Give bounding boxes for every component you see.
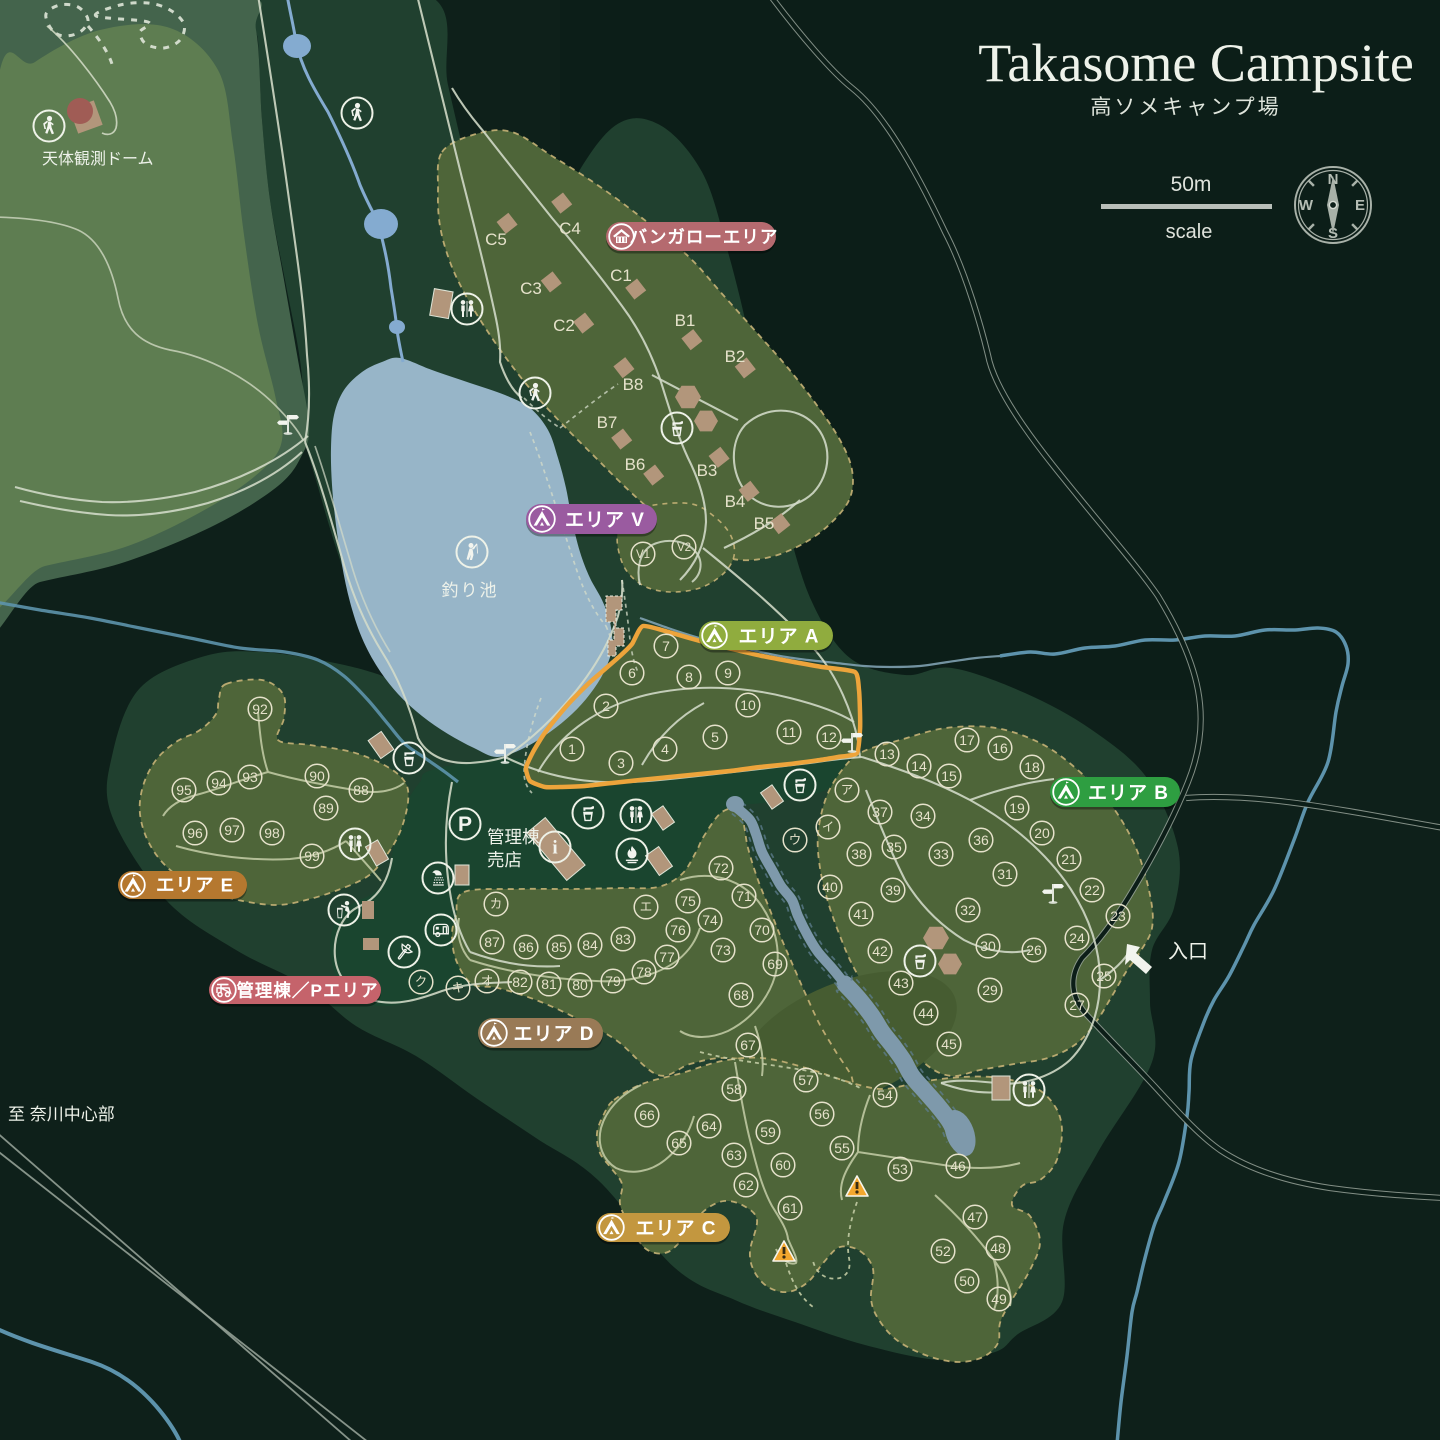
svg-text:39: 39 xyxy=(885,882,901,898)
svg-text:43: 43 xyxy=(893,975,909,991)
svg-text:26: 26 xyxy=(1026,942,1042,958)
svg-text:25: 25 xyxy=(1096,968,1112,984)
svg-text:27: 27 xyxy=(1069,997,1085,1013)
svg-text:C3: C3 xyxy=(520,279,542,298)
svg-text:63: 63 xyxy=(726,1147,742,1163)
svg-text:90: 90 xyxy=(309,768,325,784)
svg-text:29: 29 xyxy=(982,982,998,998)
svg-text:89: 89 xyxy=(318,800,334,816)
svg-text:19: 19 xyxy=(1009,800,1025,816)
svg-text:59: 59 xyxy=(760,1124,776,1140)
svg-text:P: P xyxy=(458,813,472,836)
svg-text:77: 77 xyxy=(659,949,675,965)
svg-text:i: i xyxy=(552,838,557,859)
svg-text:天体観測ドーム: 天体観測ドーム xyxy=(42,150,154,168)
svg-text:60: 60 xyxy=(775,1157,791,1173)
svg-text:エリア B: エリア B xyxy=(1088,783,1169,804)
svg-text:C2: C2 xyxy=(553,316,575,335)
svg-text:B1: B1 xyxy=(675,311,696,330)
svg-text:エリア C: エリア C xyxy=(635,1218,716,1239)
svg-text:Takasome Campsite: Takasome Campsite xyxy=(978,33,1414,93)
svg-text:49: 49 xyxy=(991,1291,1007,1307)
svg-text:75: 75 xyxy=(680,893,696,909)
svg-text:58: 58 xyxy=(726,1081,742,1097)
svg-text:V1: V1 xyxy=(636,549,650,561)
svg-text:ク: ク xyxy=(415,975,428,989)
svg-text:47: 47 xyxy=(967,1209,983,1225)
svg-text:11: 11 xyxy=(782,724,797,740)
svg-text:62: 62 xyxy=(738,1177,754,1193)
svg-text:53: 53 xyxy=(892,1161,908,1177)
svg-text:37: 37 xyxy=(872,804,888,820)
svg-text:入口: 入口 xyxy=(1168,941,1208,963)
svg-text:66: 66 xyxy=(639,1107,655,1123)
svg-text:イ: イ xyxy=(822,820,835,834)
svg-text:65: 65 xyxy=(671,1135,687,1151)
svg-text:E: E xyxy=(1355,197,1365,214)
svg-text:55: 55 xyxy=(834,1140,850,1156)
svg-text:94: 94 xyxy=(211,775,227,791)
svg-text:ウ: ウ xyxy=(789,833,802,847)
svg-text:至 奈川中心部: 至 奈川中心部 xyxy=(8,1105,115,1124)
svg-text:売店: 売店 xyxy=(487,850,522,870)
svg-text:45: 45 xyxy=(941,1036,957,1052)
svg-text:エリア V: エリア V xyxy=(565,510,645,531)
svg-text:エリア A: エリア A xyxy=(738,626,819,647)
svg-text:33: 33 xyxy=(933,846,949,862)
svg-text:88: 88 xyxy=(353,782,369,798)
svg-text:オ: オ xyxy=(481,974,494,988)
svg-text:20: 20 xyxy=(1034,825,1050,841)
svg-text:31: 31 xyxy=(997,866,1013,882)
svg-text:B7: B7 xyxy=(597,413,618,432)
svg-text:78: 78 xyxy=(636,964,652,980)
svg-text:48: 48 xyxy=(990,1240,1006,1256)
svg-text:84: 84 xyxy=(582,937,598,953)
svg-text:5: 5 xyxy=(711,729,719,745)
svg-text:バンガローエリア: バンガローエリア xyxy=(630,227,779,247)
svg-text:10: 10 xyxy=(740,697,756,713)
svg-text:32: 32 xyxy=(960,902,976,918)
svg-text:80: 80 xyxy=(572,977,588,993)
svg-text:52: 52 xyxy=(935,1243,951,1259)
svg-text:35: 35 xyxy=(886,839,902,855)
svg-text:V2: V2 xyxy=(677,542,691,554)
svg-text:12: 12 xyxy=(821,729,837,745)
svg-text:85: 85 xyxy=(551,939,567,955)
svg-text:C1: C1 xyxy=(610,266,632,285)
svg-text:61: 61 xyxy=(782,1200,798,1216)
svg-text:64: 64 xyxy=(701,1118,717,1134)
svg-text:41: 41 xyxy=(853,906,869,922)
svg-text:B4: B4 xyxy=(725,492,746,511)
svg-text:B5: B5 xyxy=(754,514,775,533)
svg-text:38: 38 xyxy=(851,846,867,862)
svg-text:50: 50 xyxy=(959,1273,975,1289)
svg-text:87: 87 xyxy=(484,934,500,950)
svg-text:36: 36 xyxy=(973,832,989,848)
svg-text:C4: C4 xyxy=(559,219,581,238)
svg-text:B8: B8 xyxy=(623,375,644,394)
svg-text:15: 15 xyxy=(941,768,957,784)
svg-text:83: 83 xyxy=(615,931,631,947)
svg-text:scale: scale xyxy=(1166,221,1213,243)
svg-text:18: 18 xyxy=(1024,759,1040,775)
svg-text:1: 1 xyxy=(568,741,576,757)
svg-text:99: 99 xyxy=(304,848,320,864)
svg-text:14: 14 xyxy=(911,758,927,774)
svg-text:21: 21 xyxy=(1061,851,1077,867)
svg-text:92: 92 xyxy=(252,701,268,717)
svg-text:エリア D: エリア D xyxy=(513,1024,594,1045)
svg-text:81: 81 xyxy=(541,976,557,992)
svg-text:キ: キ xyxy=(452,981,465,995)
svg-text:72: 72 xyxy=(713,860,729,876)
svg-text:57: 57 xyxy=(798,1072,814,1088)
svg-text:93: 93 xyxy=(242,769,258,785)
svg-text:4: 4 xyxy=(661,741,669,757)
svg-text:17: 17 xyxy=(959,732,975,748)
svg-text:71: 71 xyxy=(736,888,752,904)
svg-text:70: 70 xyxy=(754,922,770,938)
svg-text:54: 54 xyxy=(877,1087,893,1103)
svg-text:97: 97 xyxy=(224,822,240,838)
svg-text:2: 2 xyxy=(602,698,610,714)
svg-text:13: 13 xyxy=(879,746,895,762)
svg-text:79: 79 xyxy=(605,973,621,989)
svg-text:76: 76 xyxy=(670,922,686,938)
svg-text:6: 6 xyxy=(628,665,636,681)
svg-text:86: 86 xyxy=(518,939,534,955)
svg-text:釣り池: 釣り池 xyxy=(442,581,499,600)
svg-text:67: 67 xyxy=(740,1037,756,1053)
svg-text:ア: ア xyxy=(841,783,854,797)
svg-text:B2: B2 xyxy=(725,347,746,366)
svg-text:44: 44 xyxy=(918,1005,934,1021)
svg-text:40: 40 xyxy=(822,879,838,895)
svg-text:56: 56 xyxy=(814,1106,830,1122)
svg-text:82: 82 xyxy=(512,974,528,990)
svg-text:カ: カ xyxy=(490,897,503,911)
svg-text:9: 9 xyxy=(724,665,732,681)
svg-text:W: W xyxy=(1299,197,1314,214)
svg-text:69: 69 xyxy=(767,956,783,972)
svg-text:16: 16 xyxy=(992,740,1008,756)
svg-text:エ: エ xyxy=(640,900,653,914)
svg-text:3: 3 xyxy=(617,755,625,771)
svg-text:高ソメキャンプ場: 高ソメキャンプ場 xyxy=(1090,96,1281,119)
svg-text:34: 34 xyxy=(915,808,931,824)
svg-text:C5: C5 xyxy=(485,230,507,249)
svg-text:B6: B6 xyxy=(625,455,646,474)
svg-text:95: 95 xyxy=(176,782,192,798)
svg-text:42: 42 xyxy=(872,943,888,959)
svg-text:管理棟: 管理棟 xyxy=(487,827,540,847)
svg-text:68: 68 xyxy=(733,987,749,1003)
svg-text:50m: 50m xyxy=(1171,173,1212,196)
svg-text:22: 22 xyxy=(1084,882,1100,898)
svg-text:7: 7 xyxy=(662,638,670,654)
svg-text:23: 23 xyxy=(1110,908,1126,924)
svg-text:エリア E: エリア E xyxy=(156,875,234,896)
svg-text:73: 73 xyxy=(715,942,731,958)
svg-text:98: 98 xyxy=(264,825,280,841)
svg-text:96: 96 xyxy=(187,825,203,841)
svg-text:管理棟／Pエリア: 管理棟／Pエリア xyxy=(236,980,378,1000)
svg-text:8: 8 xyxy=(685,669,693,685)
svg-text:30: 30 xyxy=(980,938,996,954)
svg-text:24: 24 xyxy=(1069,930,1085,946)
svg-text:74: 74 xyxy=(702,912,718,928)
svg-text:B3: B3 xyxy=(697,461,718,480)
svg-text:46: 46 xyxy=(950,1158,966,1174)
